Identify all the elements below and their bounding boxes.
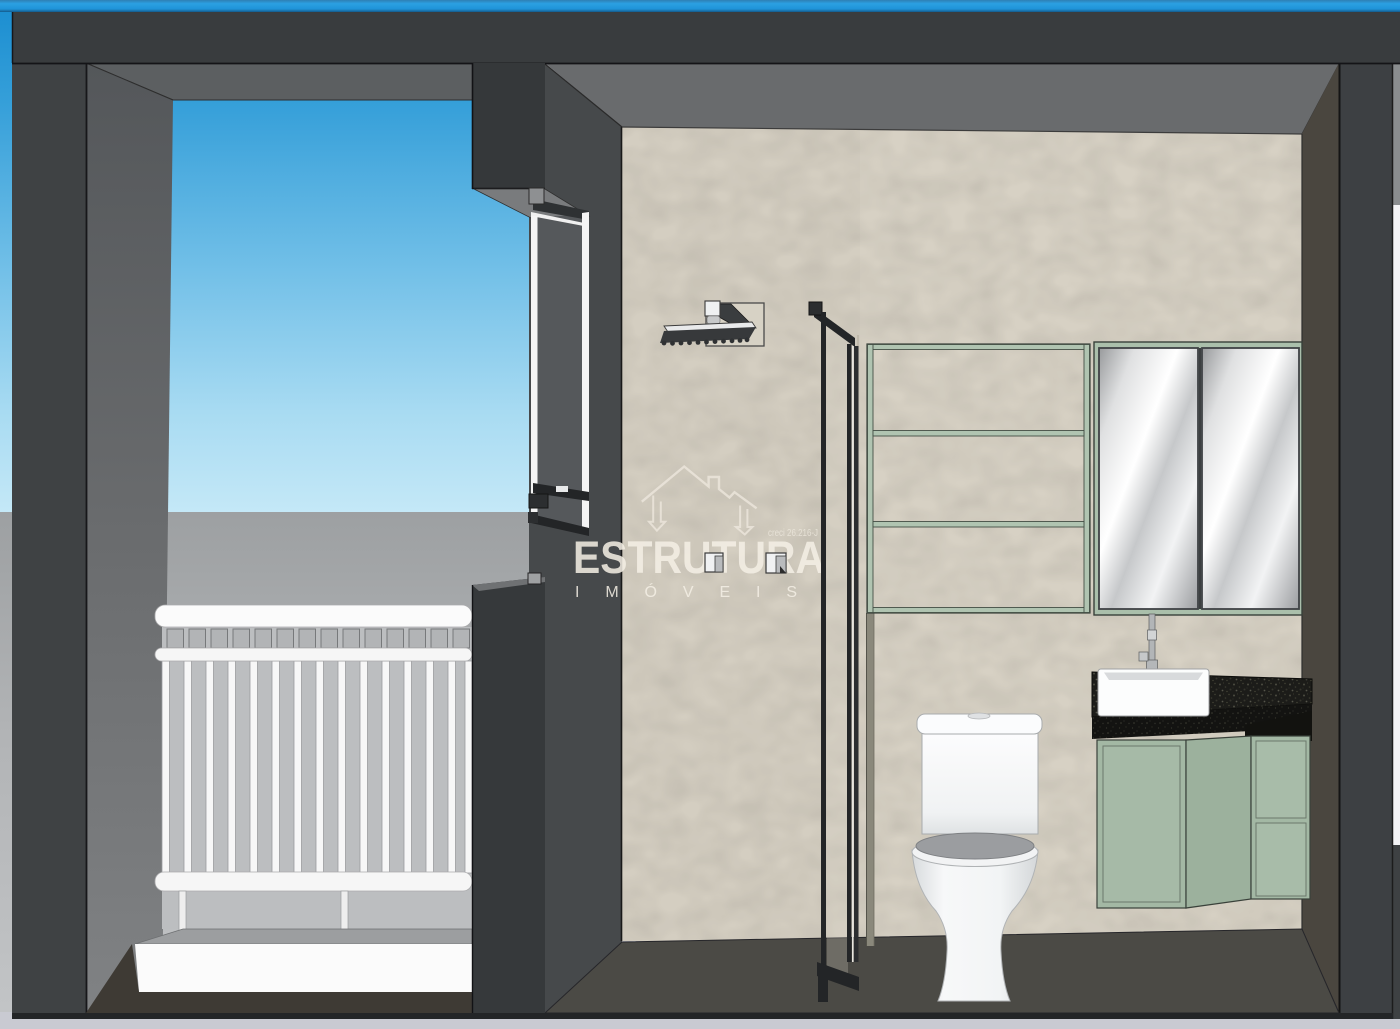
svg-text:ESTRUTURA: ESTRUTURA xyxy=(573,532,825,583)
